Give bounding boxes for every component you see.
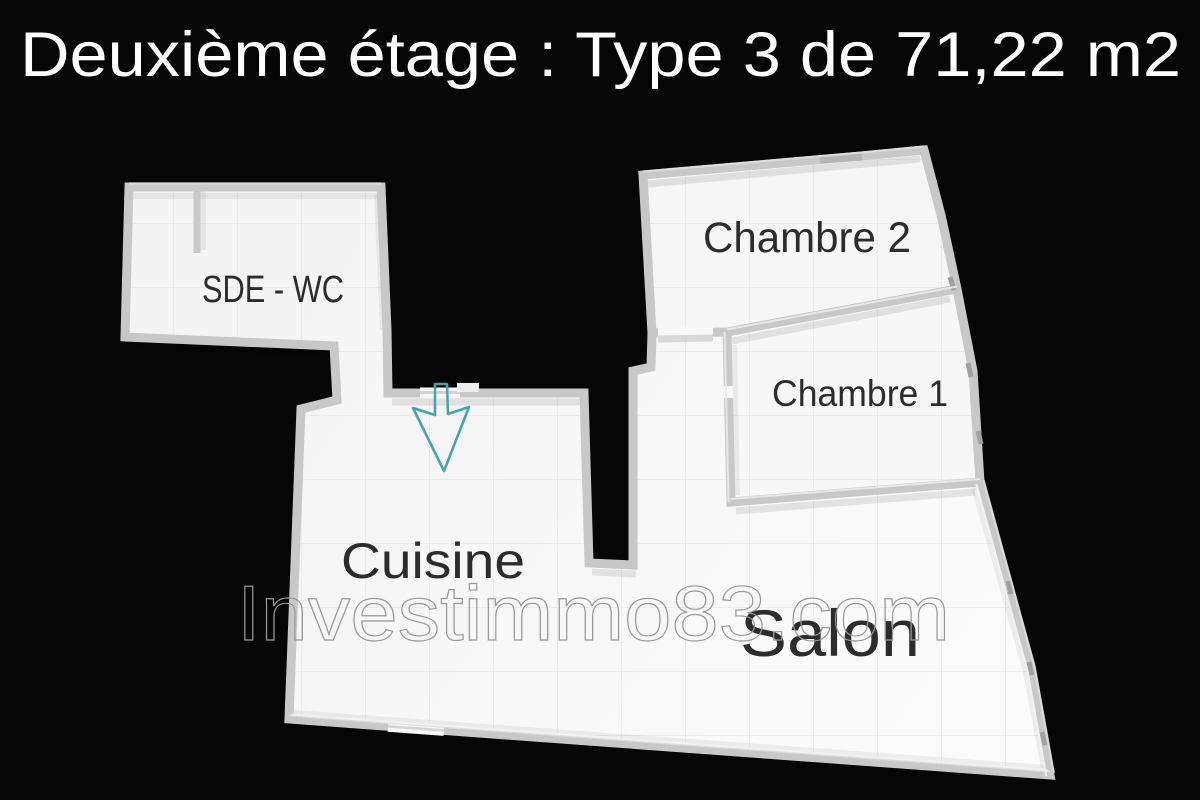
svg-text:Investimmo83.com: Investimmo83.com [237, 569, 950, 657]
svg-text:Chambre 1: Chambre 1 [772, 373, 948, 414]
svg-text:SDE - WC: SDE - WC [202, 269, 344, 311]
svg-text:Chambre 2: Chambre 2 [703, 214, 911, 262]
svg-text:Deuxième étage : Type 3 de 71,: Deuxième étage : Type 3 de 71,22 m2 [20, 20, 1181, 90]
